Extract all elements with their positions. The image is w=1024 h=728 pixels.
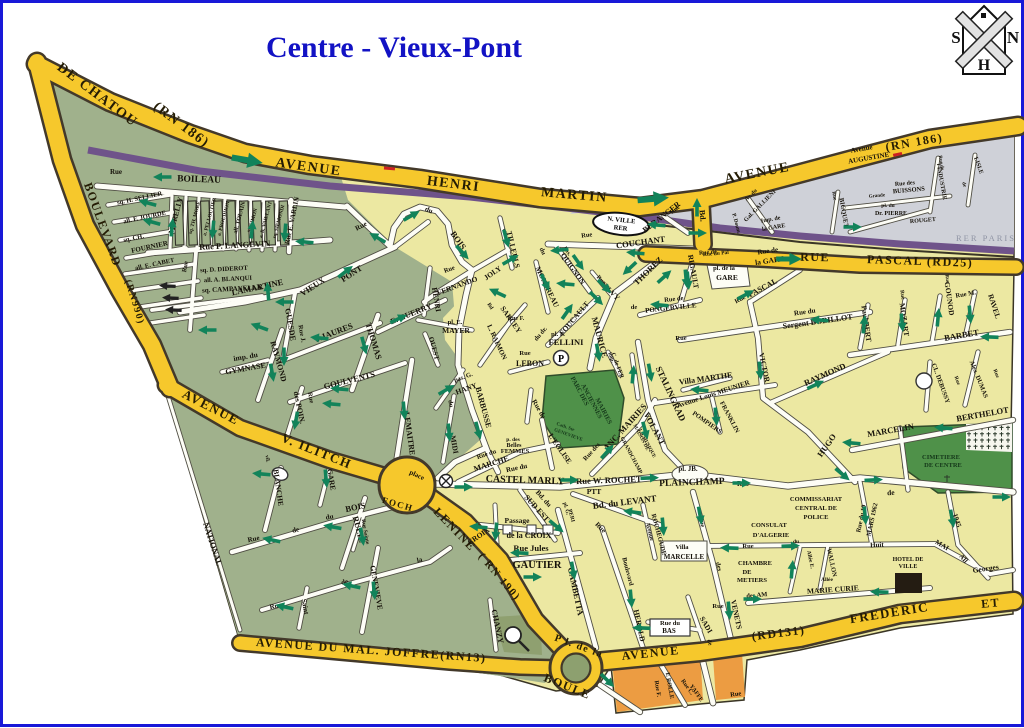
svg-text:Rue: Rue xyxy=(110,168,122,176)
svg-text:pl. de la: pl. de la xyxy=(713,265,736,272)
svg-text:DE CENTRE: DE CENTRE xyxy=(924,462,962,469)
svg-text:CENTRAL DE: CENTRAL DE xyxy=(795,505,837,512)
svg-text:HOTEL DE: HOTEL DE xyxy=(893,557,924,563)
svg-text:Allée: Allée xyxy=(821,577,833,583)
svg-text:CHAMBRE: CHAMBRE xyxy=(738,560,772,567)
svg-text:MAYER: MAYER xyxy=(442,326,470,335)
svg-text:Villa: Villa xyxy=(675,544,689,551)
svg-text:N: N xyxy=(1007,28,1020,47)
svg-text:RER PARIS: RER PARIS xyxy=(956,233,1016,243)
svg-text:Dr. PIERRE: Dr. PIERRE xyxy=(875,211,907,217)
svg-text:de: de xyxy=(631,304,638,311)
svg-text:D'ALGERIE: D'ALGERIE xyxy=(753,532,789,539)
svg-text:Huit: Huit xyxy=(870,541,885,550)
svg-text:P: P xyxy=(558,354,564,365)
svg-text:Bd.: Bd. xyxy=(697,210,707,223)
svg-text:Centre - Vieux-Pont: Centre - Vieux-Pont xyxy=(266,31,522,64)
svg-text:CIMETIERE: CIMETIERE xyxy=(922,454,960,461)
svg-text:COMMISSARIAT: COMMISSARIAT xyxy=(790,496,843,503)
svg-text:H: H xyxy=(978,57,991,74)
svg-text:RUE: RUE xyxy=(800,250,830,265)
svg-text:BAS: BAS xyxy=(662,627,676,635)
svg-text:BOILEAU: BOILEAU xyxy=(177,174,221,186)
svg-text:Rue: Rue xyxy=(675,335,686,342)
svg-text:FEMMES: FEMMES xyxy=(501,448,530,455)
svg-text:Rue F.: Rue F. xyxy=(508,316,525,322)
svg-text:CONSULAT: CONSULAT xyxy=(751,522,787,529)
svg-text:de la CROIX: de la CROIX xyxy=(507,531,552,540)
svg-text:DE: DE xyxy=(742,569,751,576)
svg-text:RER: RER xyxy=(613,224,628,232)
svg-text:FELLINI: FELLINI xyxy=(549,337,585,347)
svg-text:Rue: Rue xyxy=(519,350,530,357)
svg-text:de: de xyxy=(887,488,896,497)
svg-text:pl. JB.: pl. JB. xyxy=(678,465,698,473)
svg-text:GARE: GARE xyxy=(716,273,738,282)
svg-text:Passage: Passage xyxy=(505,516,531,525)
svg-text:LEBON: LEBON xyxy=(516,359,544,368)
svg-text:Rue: Rue xyxy=(742,543,753,550)
svg-text:VILLE: VILLE xyxy=(899,564,918,570)
svg-text:MARCELLE: MARCELLE xyxy=(664,553,705,561)
svg-text:Rue: Rue xyxy=(712,603,723,610)
svg-text:S: S xyxy=(951,28,960,47)
svg-text:PTT: PTT xyxy=(587,487,602,496)
svg-text:ET: ET xyxy=(981,595,1001,611)
svg-text:POLICE: POLICE xyxy=(804,514,829,521)
svg-text:METIERS: METIERS xyxy=(737,577,767,584)
svg-text:Rue du: Rue du xyxy=(660,620,680,627)
svg-text:pl. E.: pl. E. xyxy=(448,319,463,326)
svg-text:GAUTIER: GAUTIER xyxy=(512,560,561,571)
svg-text:pl. du: pl. du xyxy=(881,203,894,209)
